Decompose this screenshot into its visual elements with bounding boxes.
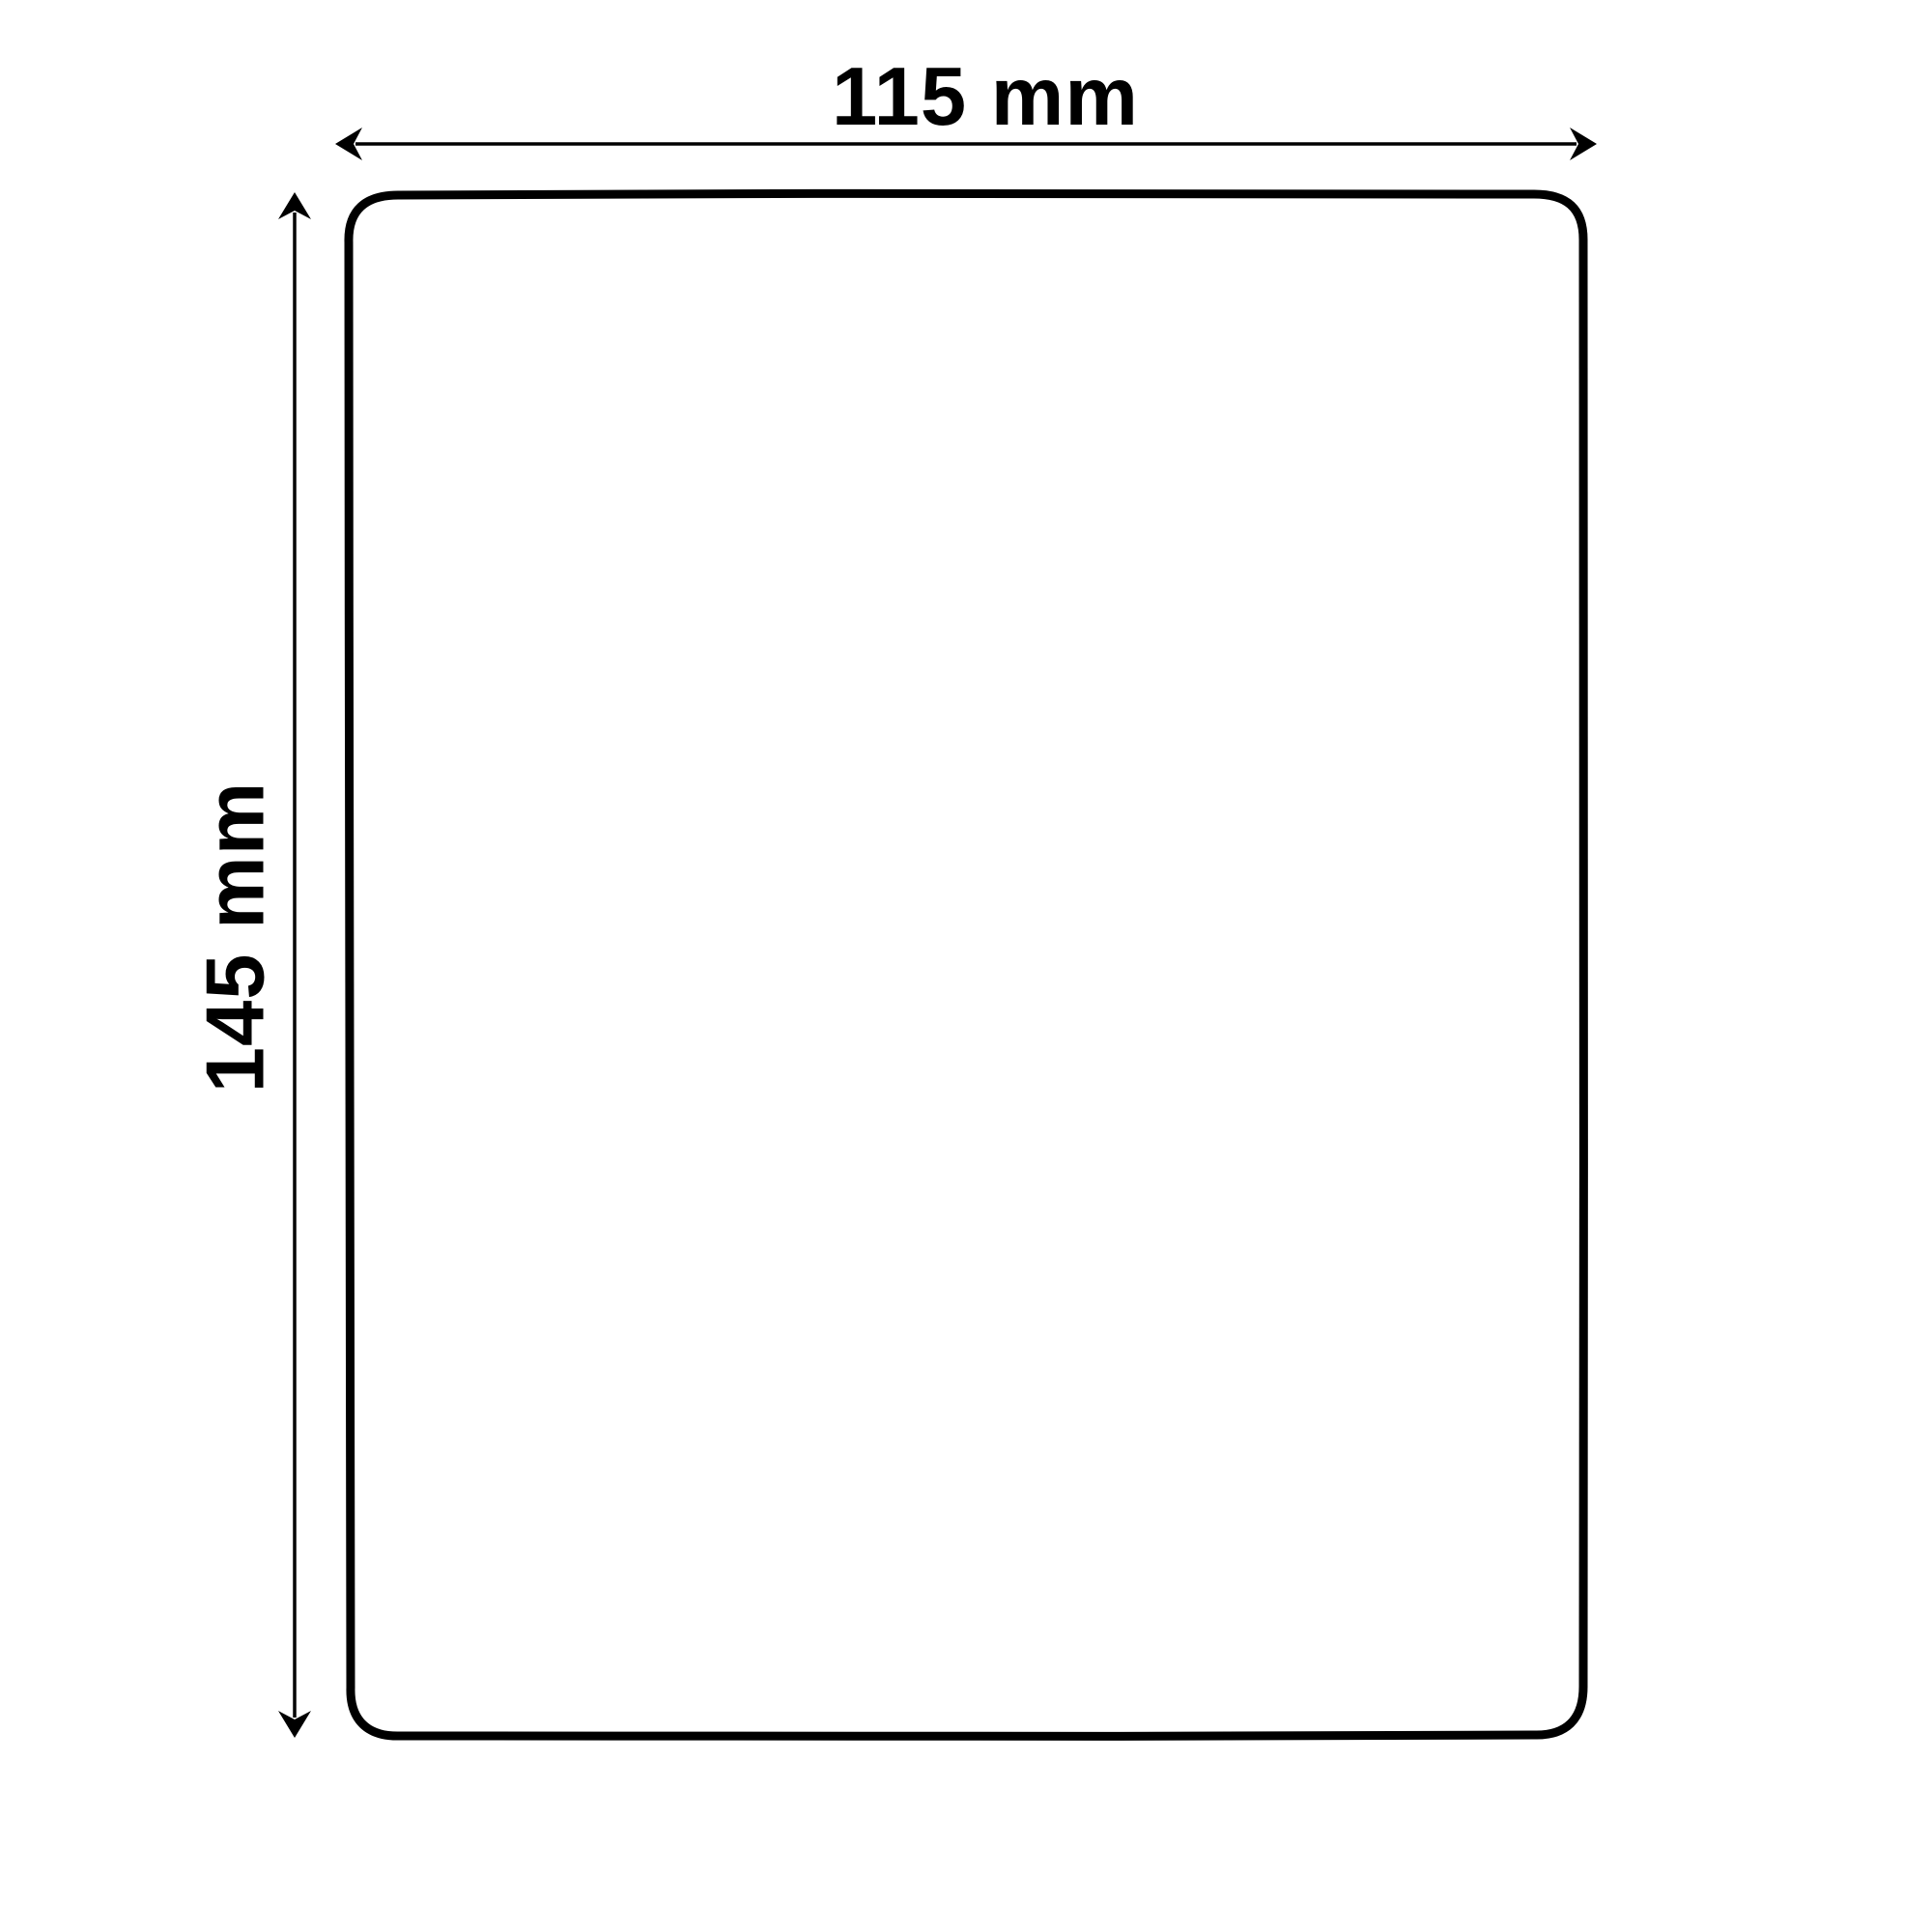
product-outline-shape: [349, 193, 1584, 1736]
height-dimension-arrow: [278, 192, 311, 1738]
diagram-drawing: [0, 0, 1932, 1932]
height-dimension-label: 145 mm: [195, 781, 277, 1094]
dimension-diagram: 115 mm 145 mm: [0, 0, 1932, 1932]
width-dimension-label: 115 mm: [832, 56, 1139, 138]
